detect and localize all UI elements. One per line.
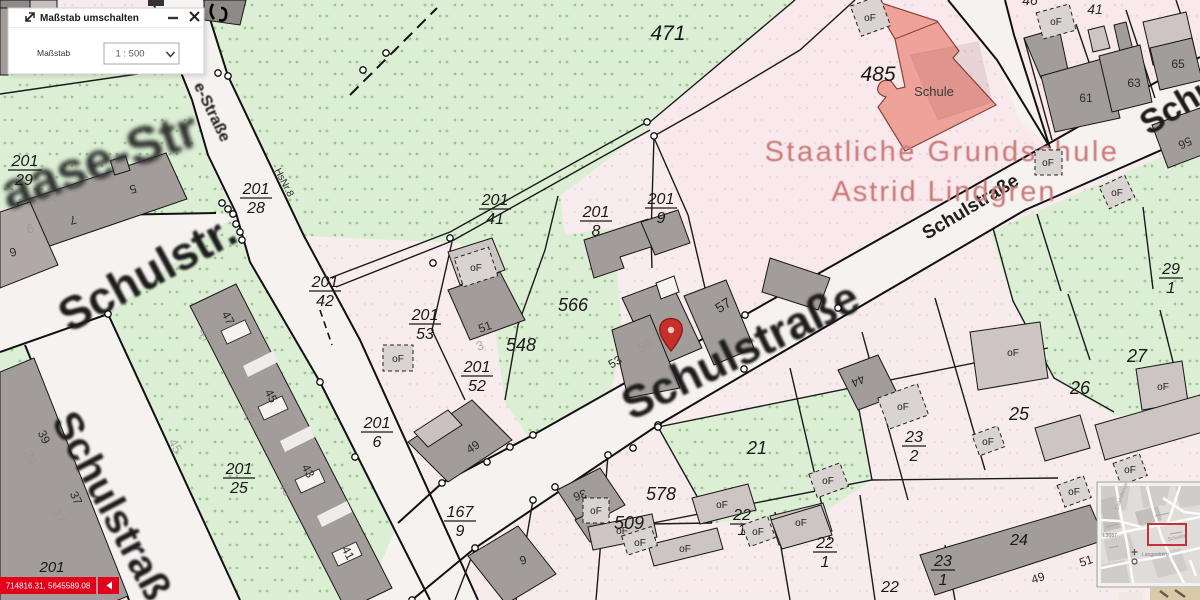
svg-text:1 : 500: 1 : 500 xyxy=(115,49,144,60)
svg-text:oF: oF xyxy=(1124,465,1136,476)
svg-text:61: 61 xyxy=(1079,91,1093,105)
svg-text:22: 22 xyxy=(880,579,899,596)
svg-text:201: 201 xyxy=(38,559,64,576)
svg-text:9: 9 xyxy=(456,523,465,540)
svg-text:oF: oF xyxy=(716,500,728,511)
svg-text:167: 167 xyxy=(447,504,475,521)
svg-text:26: 26 xyxy=(1069,378,1091,398)
svg-text:2: 2 xyxy=(909,448,919,465)
svg-text:oF: oF xyxy=(392,354,404,365)
svg-text:oF: oF xyxy=(1068,487,1080,498)
svg-text:28: 28 xyxy=(246,200,265,217)
svg-text:29: 29 xyxy=(14,172,33,189)
svg-text:L3087: L3087 xyxy=(1103,533,1117,539)
svg-text:485: 485 xyxy=(860,63,895,86)
svg-text:oF: oF xyxy=(982,437,994,448)
svg-text:29: 29 xyxy=(1161,261,1180,278)
svg-text:714816.31, 5645589.08: 714816.31, 5645589.08 xyxy=(6,582,91,591)
svg-text:201: 201 xyxy=(411,307,439,324)
svg-text:201: 201 xyxy=(463,359,491,376)
svg-text:53: 53 xyxy=(416,326,434,343)
svg-text:63: 63 xyxy=(1127,76,1141,90)
svg-text:Staatliche Grundschule: Staatliche Grundschule xyxy=(765,136,1120,168)
svg-text:201: 201 xyxy=(242,181,270,198)
svg-text:25: 25 xyxy=(1008,404,1030,424)
svg-text:566: 566 xyxy=(558,295,589,315)
svg-text:21: 21 xyxy=(746,438,767,458)
svg-text:9: 9 xyxy=(657,210,666,227)
svg-text:oF: oF xyxy=(470,263,482,274)
svg-text:oF: oF xyxy=(1007,348,1019,359)
svg-text:201: 201 xyxy=(481,192,509,209)
svg-text:oF: oF xyxy=(822,476,834,487)
svg-text:Langenberg: Langenberg xyxy=(1142,552,1169,558)
svg-text:oF: oF xyxy=(1050,17,1062,28)
svg-text:8: 8 xyxy=(592,223,601,240)
svg-text:oF: oF xyxy=(616,526,628,537)
svg-text:6: 6 xyxy=(373,434,382,451)
svg-text:65: 65 xyxy=(1171,57,1185,71)
svg-text:41: 41 xyxy=(486,211,504,228)
svg-text:oF: oF xyxy=(1042,158,1054,169)
svg-text:46: 46 xyxy=(1022,0,1038,8)
svg-text:Maßstab umschalten: Maßstab umschalten xyxy=(40,13,139,24)
svg-text:201: 201 xyxy=(225,461,253,478)
svg-text:oF: oF xyxy=(1111,188,1123,199)
svg-text:Schule: Schule xyxy=(914,84,954,99)
svg-text:23: 23 xyxy=(904,429,923,446)
svg-text:Maßstab: Maßstab xyxy=(37,48,70,58)
svg-text:oF: oF xyxy=(634,538,646,549)
svg-text:1: 1 xyxy=(821,554,830,571)
svg-text:oF: oF xyxy=(864,13,876,24)
svg-text:201: 201 xyxy=(311,274,339,291)
svg-text:oF: oF xyxy=(752,527,764,538)
svg-text:22: 22 xyxy=(815,535,834,552)
svg-text:41: 41 xyxy=(1087,1,1103,17)
svg-text:oF: oF xyxy=(590,506,602,517)
svg-text:201: 201 xyxy=(647,191,675,208)
svg-text:oF: oF xyxy=(795,518,807,529)
svg-text:471: 471 xyxy=(650,22,685,45)
svg-text:1: 1 xyxy=(939,572,948,589)
svg-text:25: 25 xyxy=(229,480,248,497)
svg-text:201: 201 xyxy=(11,153,39,170)
svg-text:201: 201 xyxy=(582,204,610,221)
svg-text:Astrid Lindgren: Astrid Lindgren xyxy=(831,176,1056,208)
svg-text:1: 1 xyxy=(1167,280,1176,297)
svg-text:42: 42 xyxy=(316,293,334,310)
svg-text:201: 201 xyxy=(363,415,391,432)
svg-text:23: 23 xyxy=(933,553,952,570)
svg-text:oF: oF xyxy=(679,544,691,555)
svg-text:52: 52 xyxy=(468,378,486,395)
svg-text:548: 548 xyxy=(506,335,536,355)
svg-text:27: 27 xyxy=(1126,346,1148,366)
svg-text:oF: oF xyxy=(897,402,909,413)
svg-text:578: 578 xyxy=(646,484,676,504)
svg-text:24: 24 xyxy=(1009,532,1028,549)
svg-text:oF: oF xyxy=(1157,382,1169,393)
